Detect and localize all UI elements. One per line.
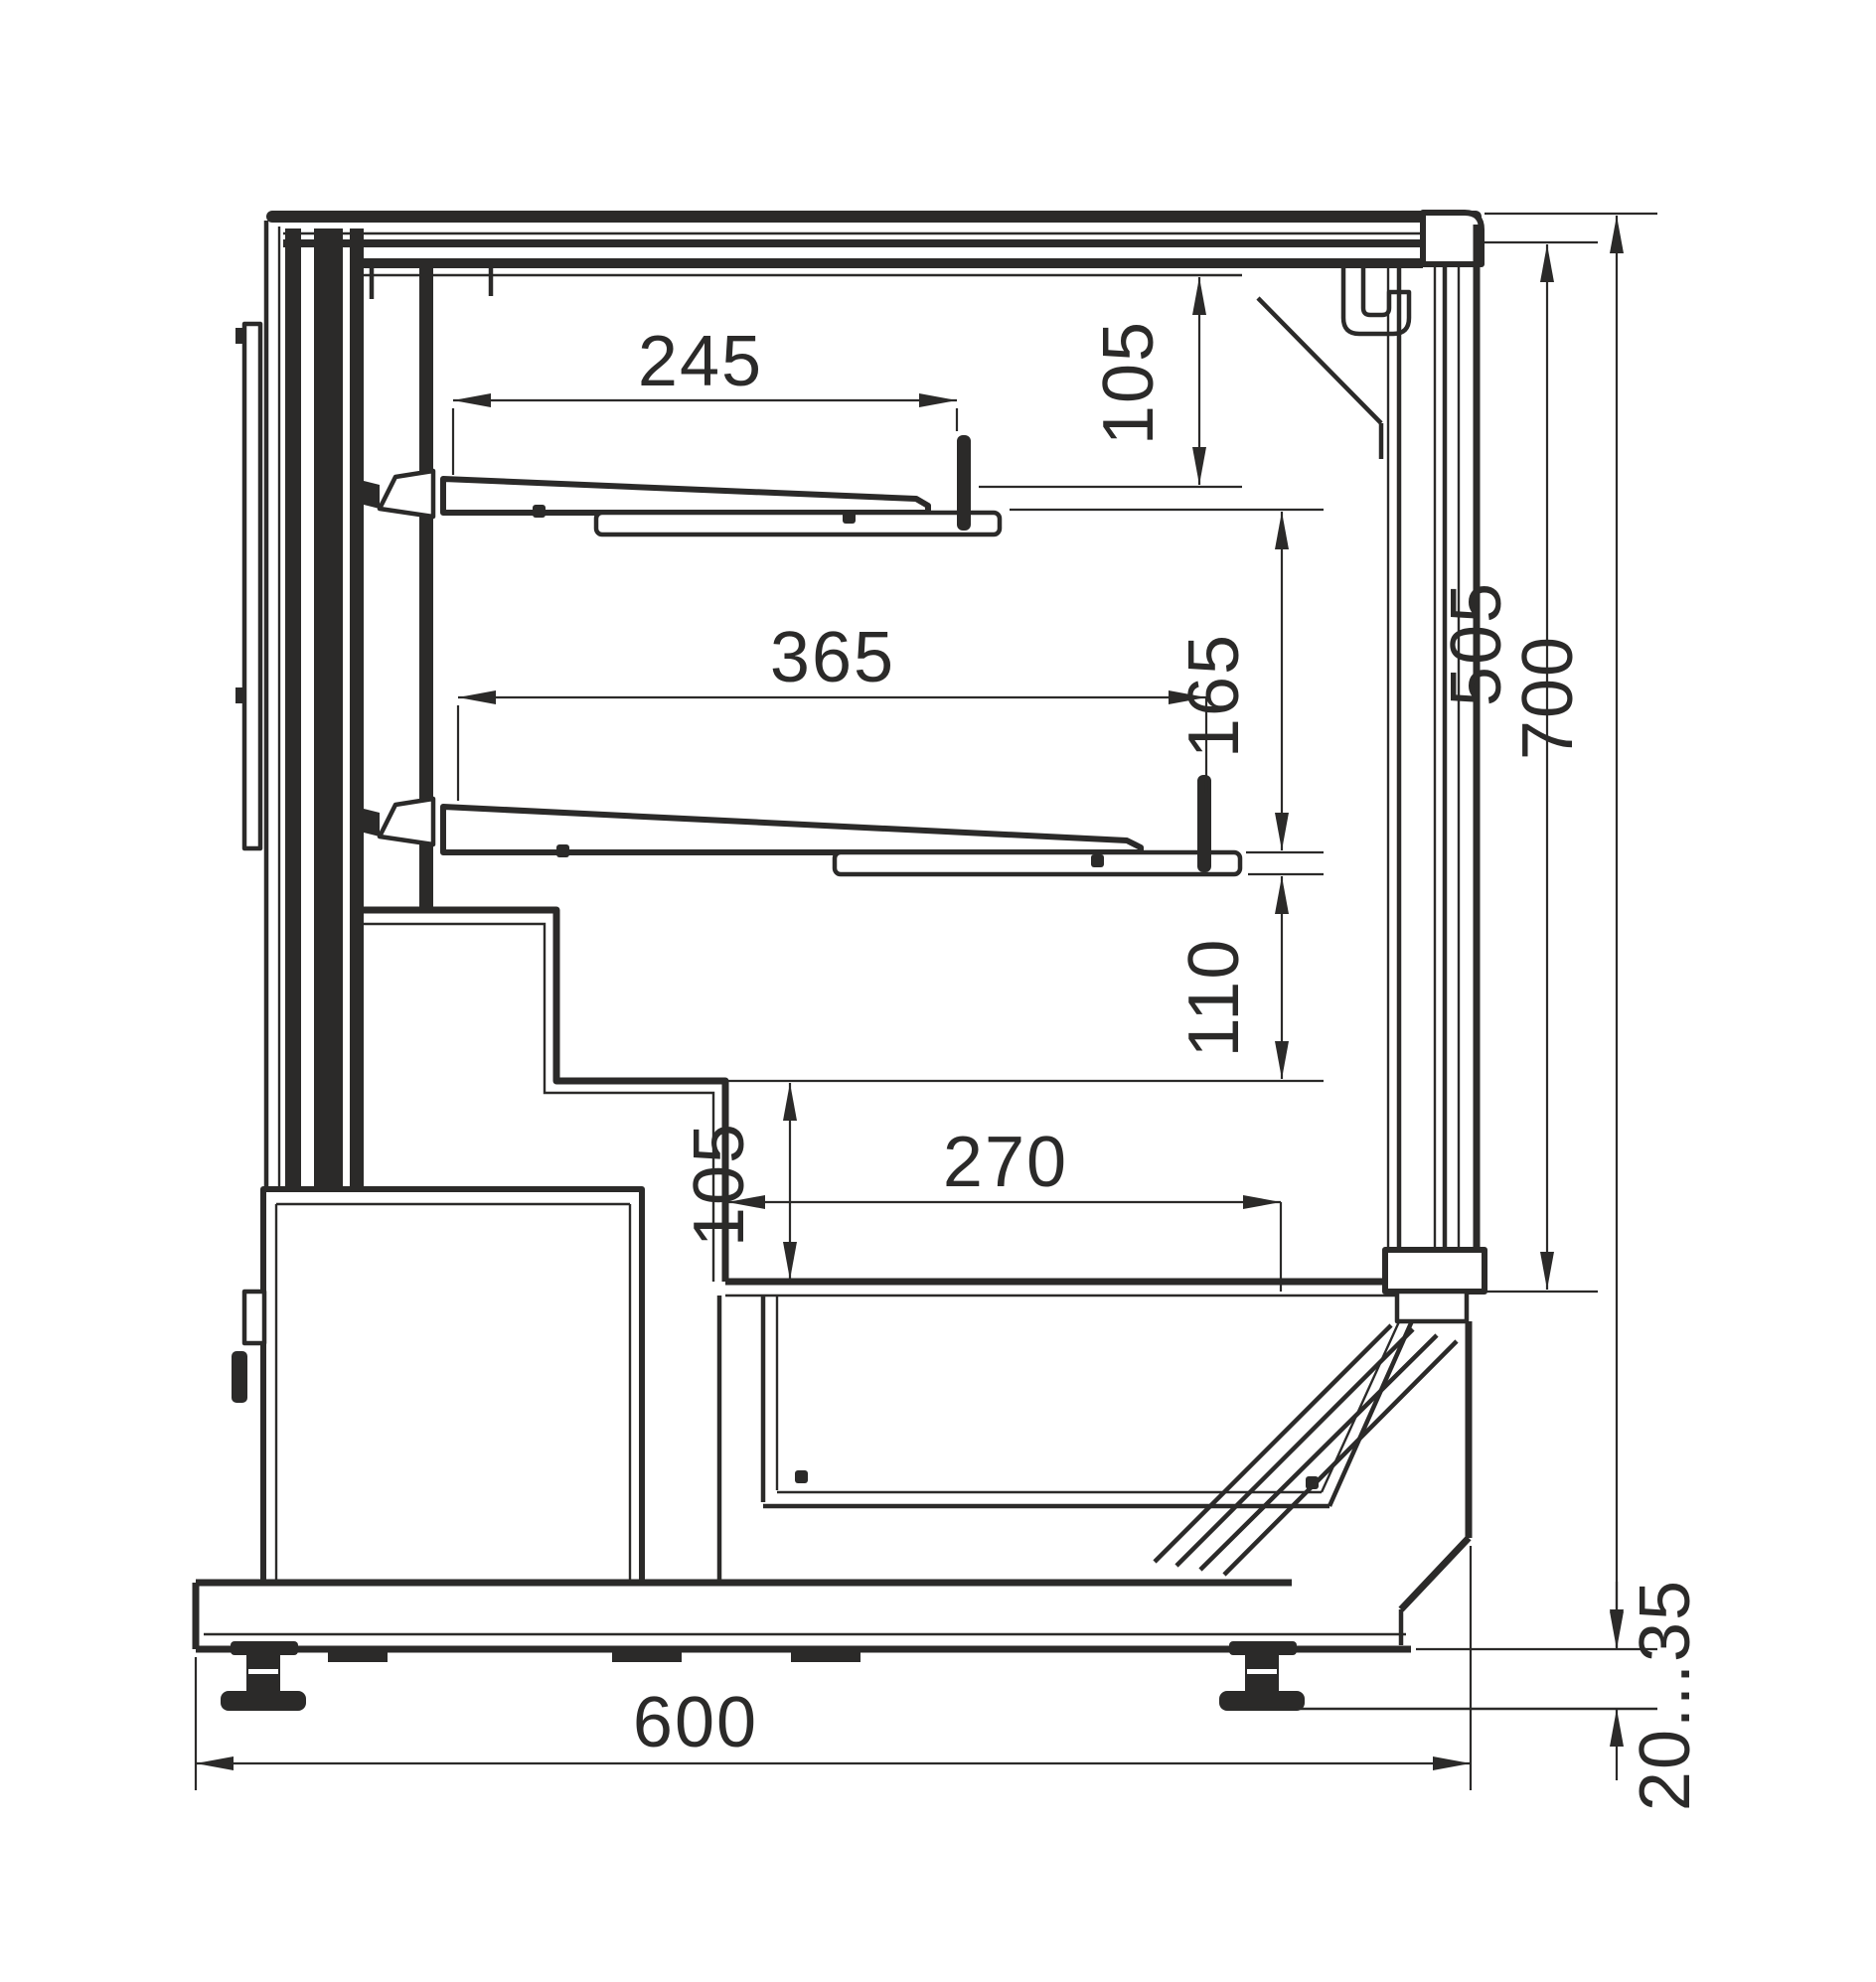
machine-compartment — [232, 1189, 642, 1583]
shelf-screw — [533, 505, 546, 518]
back-wall-profile — [285, 229, 301, 1189]
dim-label-365: 365 — [770, 618, 895, 697]
top-shelf-rail — [596, 513, 1000, 534]
well-screw — [795, 1470, 808, 1483]
glass-frame-step — [1397, 1292, 1467, 1321]
air-duct-diagonal — [1258, 298, 1381, 423]
dim-mid-shelf-depth: 365 — [458, 618, 1206, 801]
bumper-line — [1176, 1329, 1413, 1566]
canopy — [266, 211, 1482, 459]
base-tab — [328, 1649, 388, 1662]
dim-label-105-top: 105 — [1089, 320, 1169, 445]
drawing-page: 245 105 365 165 110 105 270 — [0, 0, 1876, 1982]
canopy-mid-band — [283, 239, 1472, 247]
door-latch — [232, 1351, 247, 1403]
door-hinge — [244, 1292, 264, 1343]
bumper-line — [1200, 1335, 1437, 1570]
top-shelf — [364, 435, 1000, 534]
rear-plate-tab — [235, 328, 244, 344]
middle-shelf — [364, 775, 1240, 874]
rear-plate-tab — [235, 687, 244, 703]
middle-shelf-bracket — [380, 799, 433, 844]
dim-foot-adjust: 20...35 — [1617, 1579, 1705, 1811]
dim-label-245: 245 — [638, 322, 763, 401]
foot-stem — [246, 1655, 280, 1695]
back-wall-profile — [314, 229, 343, 1189]
dim-canopy-to-top-shelf: 105 — [979, 277, 1242, 487]
bottom-well — [725, 1254, 1427, 1506]
shelf-screw — [843, 511, 856, 524]
shelf-screw — [1091, 854, 1104, 867]
dim-overall-height: 700 — [1416, 214, 1657, 1649]
middle-shelf-plate — [443, 807, 1141, 852]
back-wall — [235, 221, 433, 1189]
middle-shelf-stopper-pin — [1197, 775, 1211, 872]
dim-top-to-mid-clearance: 165 — [1010, 510, 1324, 852]
back-wall-profile — [350, 229, 364, 1189]
dim-mid-to-deck-clearance: 110 — [725, 874, 1324, 1081]
foot-flange — [231, 1641, 298, 1655]
foot-stem — [1245, 1655, 1279, 1695]
front-chamfer — [1401, 1538, 1469, 1609]
front-glass — [1385, 225, 1485, 1321]
machine-box — [263, 1189, 642, 1583]
middle-shelf-rail — [835, 852, 1240, 874]
dim-top-shelf-depth: 245 — [453, 322, 957, 475]
base-tab — [791, 1649, 860, 1662]
rear-cover-plate — [244, 324, 260, 848]
canopy-right-corner — [1423, 213, 1482, 264]
technical-drawing: 245 105 365 165 110 105 270 — [0, 0, 1876, 1982]
dim-front-opening-height: 505 — [1437, 242, 1598, 1292]
foot-stem-thread — [1247, 1669, 1277, 1674]
dim-label-20-35: 20...35 — [1626, 1579, 1705, 1811]
foot-stem-thread — [248, 1669, 278, 1674]
dim-well-depth: 270 — [727, 1123, 1281, 1292]
dim-label-600: 600 — [633, 1683, 758, 1762]
foot-right — [1219, 1641, 1305, 1711]
dim-label-110: 110 — [1174, 938, 1254, 1058]
foot-left — [221, 1641, 306, 1711]
glass-bottom-frame — [1385, 1250, 1485, 1292]
top-shelf-wall-hook — [364, 481, 380, 509]
base-tab — [612, 1649, 682, 1662]
foot-flange — [1229, 1641, 1297, 1655]
canopy-ceiling-band — [350, 258, 1423, 268]
dim-label-105-bottom: 105 — [680, 1122, 759, 1247]
foot-pad — [221, 1691, 306, 1711]
top-shelf-bracket — [380, 471, 433, 517]
top-shelf-plate — [443, 479, 928, 513]
dim-label-700: 700 — [1508, 635, 1588, 760]
shelf-screw — [556, 844, 569, 857]
canopy-top-band — [266, 211, 1482, 223]
top-shelf-stopper-pin — [957, 435, 971, 531]
dim-deck-step-height: 105 — [680, 1083, 790, 1280]
dim-label-270: 270 — [943, 1123, 1068, 1202]
dim-label-165: 165 — [1174, 633, 1254, 758]
dim-label-505: 505 — [1437, 581, 1516, 706]
middle-shelf-wall-hook — [364, 809, 380, 837]
